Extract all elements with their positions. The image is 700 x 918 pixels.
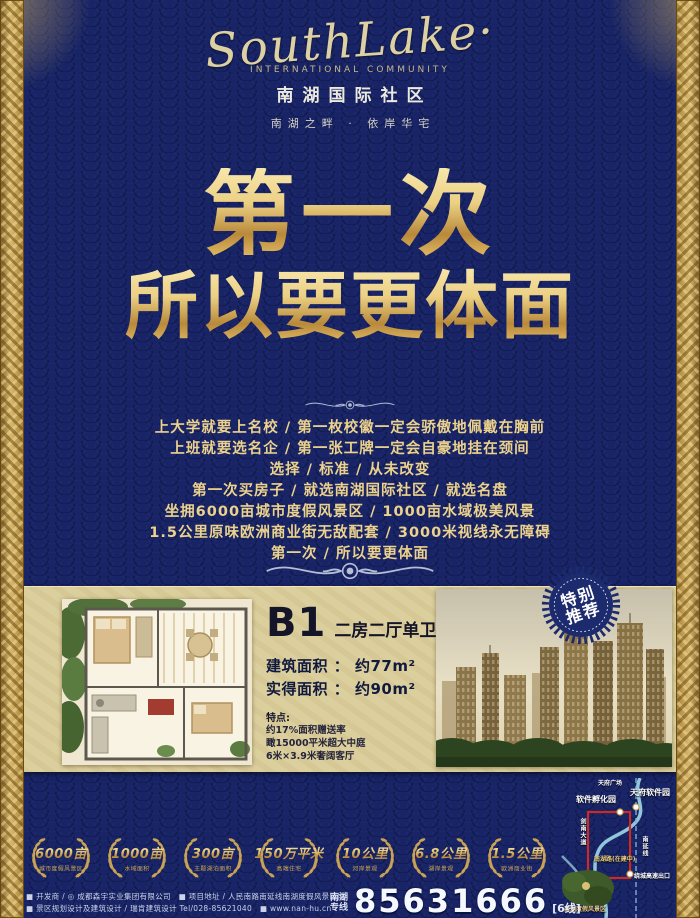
- map-label-road-left: 剑南大道: [578, 818, 587, 846]
- ornate-border-right: [676, 0, 700, 918]
- map-label-exit: 绕城高速出口: [634, 871, 670, 880]
- award-label: 水域面积: [106, 864, 169, 873]
- award-label: 城市度假风景区: [30, 864, 93, 873]
- award-value: 1000亩: [102, 843, 172, 862]
- award-label: 高端住宅: [258, 864, 321, 873]
- ornate-border-left: [0, 0, 24, 918]
- body-line: 1.5公里原味欧洲商业街无敌配套 / 3000米视线永无障碍: [40, 523, 660, 544]
- brand-name-chinese: 南湖国际社区: [0, 81, 700, 106]
- body-line: 上班就要选名企 / 第一张工牌一定会自豪地挂在颈间: [40, 439, 660, 460]
- map-label-incubator: 软件孵化园: [576, 794, 616, 805]
- award-value: 1.5公里: [482, 843, 552, 862]
- unit-feature: 6米×3.9米奢阔客厅: [266, 750, 446, 763]
- unit-type: 二房二厅单卫: [334, 616, 436, 641]
- unit-feature: 约17%面积赠送率: [266, 724, 446, 737]
- poster: SouthLake· International community 南湖国际社…: [0, 0, 700, 918]
- hotline-label-line1: 南湖: [330, 893, 348, 903]
- body-line: 坐拥6000亩城市度假风景区 / 1000亩水域极美风景: [40, 502, 660, 523]
- headline-line1: 第一次: [0, 168, 700, 260]
- unit-features-title: 特点:: [266, 709, 446, 724]
- main-headline: 第一次 所以要更体面: [0, 168, 700, 346]
- body-copy: 上大学就要上名校 / 第一枚校徽一定会骄傲地佩戴在胸前 上班就要选名企 / 第一…: [40, 418, 660, 565]
- award-label: 河岸景观: [334, 864, 397, 873]
- map-label-road-mid: 南湖路(在建中): [594, 854, 636, 863]
- award-value: 150万平米: [254, 843, 324, 862]
- award-label: 湖岸景观: [410, 864, 473, 873]
- hotline-label: 南湖 专线: [330, 893, 348, 913]
- award-badge: 150万平米 高端住宅: [254, 836, 324, 890]
- award-label: 欧洲商业街: [486, 864, 549, 873]
- brand-logo-block: SouthLake· International community 南湖国际社…: [0, 14, 700, 131]
- map-label-road-right: 南延线: [640, 836, 649, 857]
- phone-number: 85631666: [354, 882, 548, 918]
- body-line: 选择 / 标准 / 从未改变: [40, 460, 660, 481]
- design-info-line: ■ 景区规划设计及建筑设计 / 瑞肯建筑设计 Tel/028-85621040 …: [26, 903, 356, 915]
- special-recommendation-badge: 特别 推荐: [541, 565, 621, 645]
- map-label-software-park: 天府软件园: [630, 787, 670, 798]
- footer-info: ■ 开发商 / ◎ 成都森宇实业集团有限公司 ■ 项目地址 / 人民南路南延线南…: [26, 891, 356, 915]
- award-value: 300亩: [178, 843, 248, 862]
- award-badge: 1000亩 水域面积: [102, 836, 172, 890]
- body-line: 上大学就要上名校 / 第一枚校徽一定会骄傲地佩戴在胸前: [40, 418, 660, 439]
- map-label-square: 天府广场: [598, 778, 622, 787]
- award-badge: 6000亩 城市度假风景区: [26, 836, 96, 890]
- flourish-divider-icon: [302, 396, 398, 414]
- body-line: 第一次买房子 / 就选南湖国际社区 / 就选名盘: [40, 481, 660, 502]
- phone-lines-suffix: [6线]: [552, 900, 581, 916]
- unit-built-area: 建筑面积 ： 约77m²: [266, 655, 446, 678]
- unit-info-panel: B1 二房二厅单卫 建筑面积 ： 约77m² 实得面积 ： 约90m² 特点: …: [266, 603, 446, 763]
- floorplan-image: [62, 599, 252, 765]
- unit-promo-band: B1 二房二厅单卫 建筑面积 ： 约77m² 实得面积 ： 约90m² 特点: …: [22, 586, 678, 772]
- flourish-divider-icon: [260, 556, 440, 586]
- hotline-label-line2: 专线: [330, 903, 348, 913]
- award-badge: 300亩 主题湖泊面积: [178, 836, 248, 890]
- unit-feature: 瞰15000平米超大中庭: [266, 737, 446, 750]
- unit-code: B1: [266, 603, 326, 643]
- award-value: 10公里: [330, 843, 400, 862]
- unit-usable-area: 实得面积 ： 约90m²: [266, 678, 446, 701]
- award-value: 6000亩: [26, 843, 96, 862]
- brand-logo-script: SouthLake·: [203, 4, 497, 79]
- award-value: 6.8公里: [406, 843, 476, 862]
- headline-line2: 所以要更体面: [0, 266, 700, 346]
- award-label: 主题湖泊面积: [182, 864, 245, 873]
- developer-info-line: ■ 开发商 / ◎ 成都森宇实业集团有限公司 ■ 项目地址 / 人民南路南延线南…: [26, 891, 356, 903]
- hotline-phone: 85631666 [6线]: [354, 882, 581, 918]
- brand-tagline: 南湖之畔 · 依岸华宅: [0, 115, 700, 131]
